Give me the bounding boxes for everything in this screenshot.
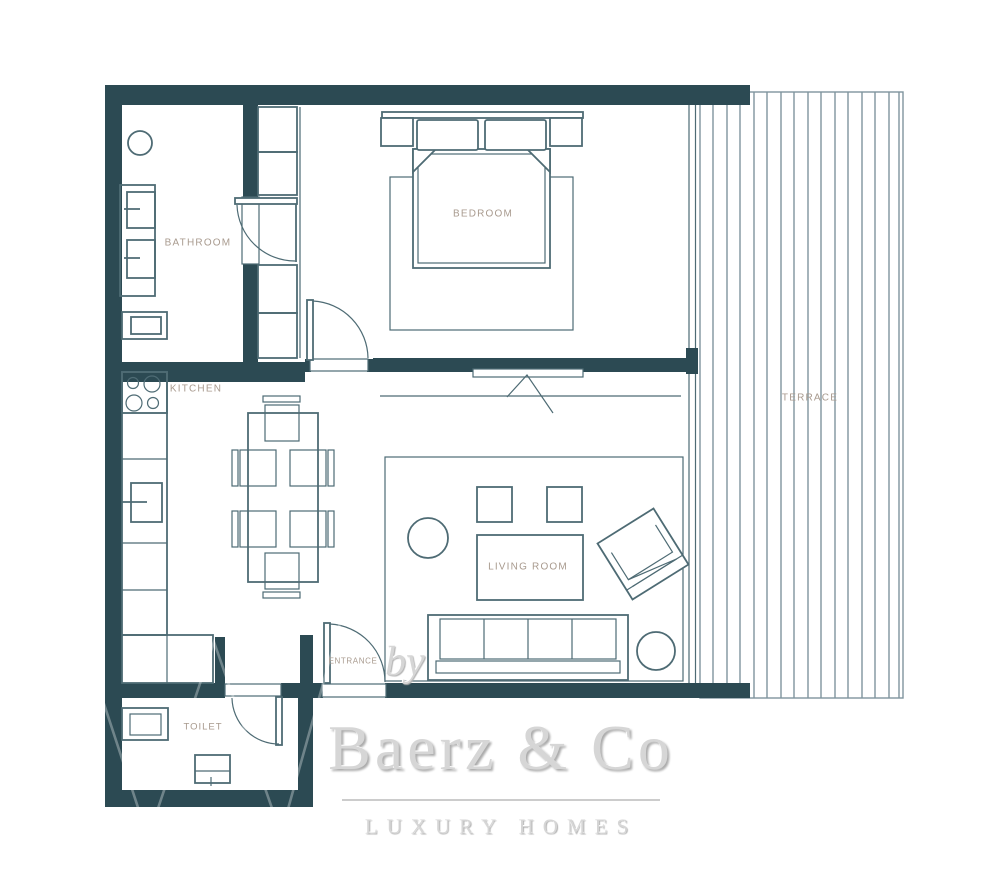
room-label-terrace: TERRACE <box>782 393 838 404</box>
headboard <box>382 112 583 118</box>
floor-plan-page: BATHROOM BEDROOM KITCHEN LIVING ROOM TER… <box>0 0 1000 892</box>
room-label-toilet: TOILET <box>183 722 222 733</box>
entrance-door <box>324 623 385 683</box>
room-label-entrance: ENTRANCE <box>329 657 378 666</box>
logo-brand-text: Baerz & Co <box>328 711 674 785</box>
bedroom-door <box>307 300 368 360</box>
room-label-kitchen: KITCHEN <box>170 384 222 395</box>
bedroom-furniture <box>381 112 583 330</box>
threshold-bedroom <box>310 359 368 371</box>
vanity-two-sinks-symbol <box>120 185 155 296</box>
pillow-right <box>485 120 546 150</box>
floor-lamp-icon <box>637 632 675 670</box>
logo-tagline-text: LUXURY HOMES <box>365 815 637 840</box>
wall-bathroom-divider-lower <box>243 263 258 362</box>
side-table-round <box>408 518 448 558</box>
pillow-left <box>417 120 478 150</box>
kitchen-counter <box>122 372 167 635</box>
room-label-living-room: LIVING ROOM <box>488 562 568 573</box>
window-mid-stub <box>686 348 698 374</box>
wall-kitchen-bottom <box>105 683 225 698</box>
armchair-symbol <box>598 509 689 600</box>
window-swing-indicator <box>507 375 553 413</box>
nightstand-left <box>381 118 413 146</box>
double-bed-symbol <box>381 112 583 268</box>
logo-by-text: by <box>385 638 425 686</box>
wall-toilet-symbol-2 <box>122 708 168 740</box>
pouf-right <box>547 487 582 522</box>
dining-table-six-chairs-symbol <box>232 396 334 598</box>
wall-top <box>105 85 750 105</box>
threshold-entrance <box>322 684 386 697</box>
sofa-four-seat-symbol <box>428 615 628 680</box>
kitchen-fixtures <box>122 372 213 683</box>
room-label-bedroom: BEDROOM <box>453 209 513 220</box>
threshold-bathroom <box>242 197 259 264</box>
pouf-left <box>477 487 512 522</box>
ceiling-light-icon <box>128 131 152 155</box>
wall-vestibule-east <box>300 635 313 683</box>
room-label-bathroom: BATHROOM <box>165 238 232 249</box>
wall-bottom-east-of-entrance <box>385 683 750 698</box>
washbasin-symbol <box>195 755 230 786</box>
window-full-height-east <box>689 105 696 683</box>
nightstand-right <box>550 118 582 146</box>
dining-table <box>248 413 318 582</box>
kitchen-counter-bottom <box>122 635 213 683</box>
wardrobe-symbol <box>258 107 300 358</box>
toilet-fixtures <box>122 708 230 786</box>
wall-bathroom-divider-upper <box>243 105 258 198</box>
logo-divider-rule <box>342 799 660 801</box>
wall-toilet-symbol <box>122 312 167 339</box>
bathroom-fixtures <box>120 131 167 339</box>
wall-toilet-jamb-east <box>281 683 313 698</box>
kitchen-sink-icon <box>122 483 162 522</box>
toilet-door <box>232 697 282 745</box>
